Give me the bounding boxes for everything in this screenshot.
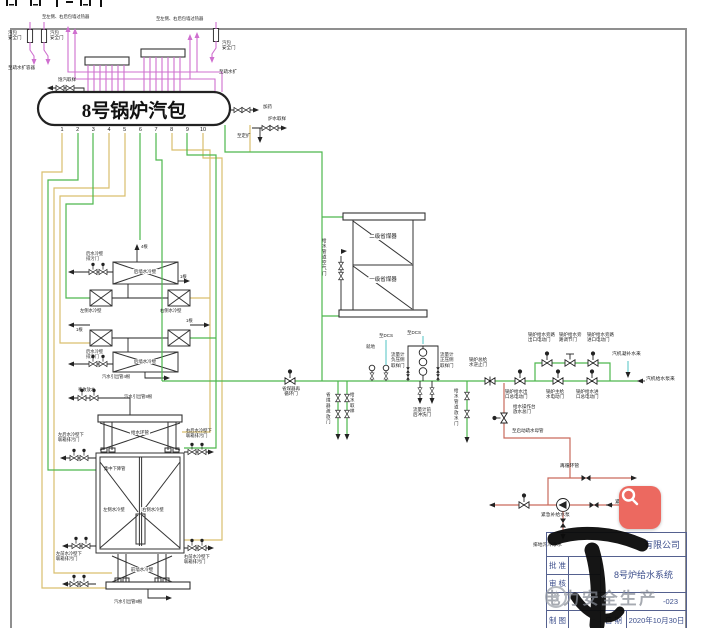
drum-sampling-lines: [230, 107, 287, 152]
search-button[interactable]: [619, 486, 661, 529]
emergency-pump-symbol: [557, 499, 570, 512]
diagram-page: 至左侧、右后包墙过热器至左侧、右后包墙过热器汽包 安全门汽包 安全门汽包 安全门…: [0, 0, 704, 628]
drum-title: 8号锅炉汽包: [38, 96, 230, 123]
magnifier-icon: [619, 486, 641, 508]
redaction-scribble: [540, 525, 700, 628]
economizer: [225, 125, 427, 381]
water-wall-assembly-lower: [68, 330, 190, 381]
drain-emergency-system: [489, 383, 640, 540]
furnace-structure: [60, 389, 214, 601]
water-wall-assembly-upper: [68, 244, 210, 328]
drum-steam-piping: [27, 22, 222, 92]
cropped-text-marks: [6, 0, 102, 7]
main-feedwater-line: [156, 133, 645, 443]
